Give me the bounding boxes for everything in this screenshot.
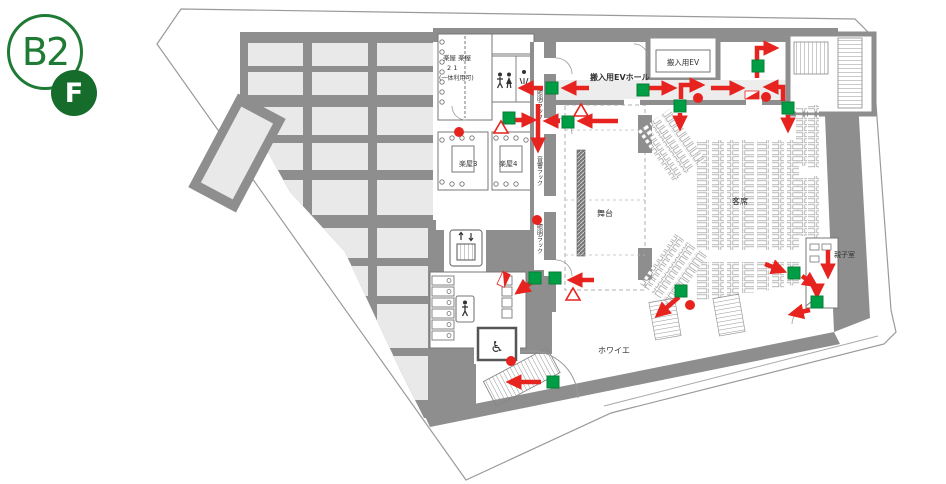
exit-light-symbol [782,102,794,114]
label-lighting-rack-2: 照明ラック [536,224,543,254]
grid-room [312,356,368,400]
seat-block [742,140,754,250]
grid-room [377,228,433,258]
seat-block [808,105,819,168]
seat-block [727,140,739,250]
seat-block [742,262,754,293]
label-foyer: ホワイエ [598,346,630,355]
alarm-dot-symbol [532,215,542,225]
grid-room [248,356,303,400]
seat-block [796,108,807,166]
label-stage: 舞台 [597,208,613,218]
exit-light-symbol [503,112,515,124]
stage-lift-hatch [577,150,585,256]
label-loading-ev-hall: 搬入用EVホール [590,72,650,82]
exit-light-symbol [752,60,764,72]
alarm-dot-symbol [506,356,516,366]
grid-room [248,72,303,95]
seat-block [772,140,784,250]
grid-room [377,180,433,215]
seat-block [712,140,724,250]
floor-level: B2 [22,30,68,74]
exit-light-symbol [562,116,574,128]
floor-suffix: F [65,78,83,109]
stairs-top-right [788,34,874,114]
grid-room [377,43,433,66]
stage-area [565,105,652,290]
floor-plan: ♿ 搬入用EVホール 搬入用EV 舞台 客席 親子室 [0,0,946,484]
grid-room [312,107,368,135]
seat-block [796,178,807,236]
grid-room [248,43,303,66]
grid-room [248,304,303,348]
grid-room [312,43,368,66]
grid-room [377,107,433,135]
label-sound-rack: 音響ラック [536,155,543,186]
exit-light-symbol [811,296,823,308]
grid-room [377,266,433,296]
seat-block [757,140,769,250]
grid-room [312,143,368,170]
floor-suffix-circle: F [51,70,97,116]
label-dressing-1-2-c: (一体利用可) [439,74,474,82]
grid-room [377,143,433,170]
label-loading-ev: 搬入用EV [667,57,700,67]
label-dressing-4: 楽屋4 [499,159,518,168]
alarm-dot-symbol [454,127,464,137]
grid-room [312,180,368,215]
elevator-icon [444,226,486,272]
label-dressing-3: 楽屋3 [459,159,477,168]
seat-block [712,262,724,298]
grid-room [248,266,303,296]
label-dressing-1-2-a: 楽屋 楽屋 [443,53,472,62]
seat-block [808,176,819,238]
seat-block [727,262,739,295]
alarm-dot-symbol [761,92,771,102]
grid-room [377,72,433,95]
exit-light-symbol [547,376,559,388]
wheelchair-icon: ♿ [490,338,503,356]
exit-light-symbol [675,285,687,297]
alarm-dot-symbol [693,93,703,103]
exit-light-symbol [788,267,800,279]
exit-light-symbol [637,84,649,96]
floor-badge: B2 F [7,14,107,114]
exit-light-symbol [674,100,686,112]
label-dressing-1-2-b: 2 1 [447,64,457,72]
exit-light-symbol [546,82,558,94]
exit-light-symbol [549,272,561,284]
label-parent-child-room: 親子室 [834,250,855,259]
label-audience: 客席 [732,196,748,206]
alarm-dot-symbol [685,300,695,310]
evacuation-floor-plan-page: B2 F [0,0,946,484]
exit-light-symbol [529,272,541,284]
grid-room [312,72,368,95]
hydrant-flag-symbol [745,91,759,99]
